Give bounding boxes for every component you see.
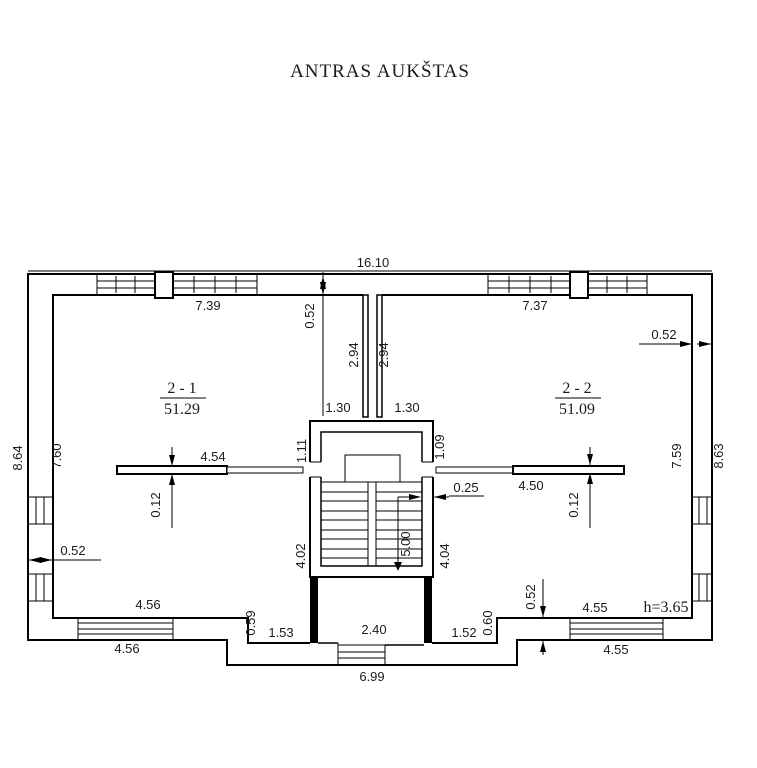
dim-porch-step-left: 0.59 — [243, 610, 258, 635]
dim-left-outer: 8.64 — [10, 445, 25, 470]
stair-stringer-gap — [368, 483, 376, 565]
dim-wall-bottom: 0.52 — [523, 584, 538, 609]
dim-left-inner: 7.60 — [49, 443, 64, 468]
room1-number: 2 - 1 — [167, 380, 196, 397]
dim-wall-left: 0.52 — [60, 543, 85, 558]
stair-door-gap-right — [420, 462, 435, 477]
dim-bottom-left-b: 4.56 — [114, 641, 139, 656]
dim-stair-lower-left: 4.02 — [293, 543, 308, 568]
window-band-top-left-2 — [173, 274, 257, 295]
dim-stair-upper-right: 1.09 — [432, 434, 447, 459]
dim-room2-top: 7.37 — [522, 298, 547, 313]
left-wall-windows — [28, 497, 53, 601]
window-band-top-right-2 — [588, 274, 647, 295]
dim-right-outer: 8.63 — [711, 443, 726, 468]
vestibule-wall-left — [310, 577, 318, 643]
right-wall-windows — [692, 497, 712, 601]
vestibule — [310, 577, 432, 665]
dim-stair-lower-right: 4.04 — [437, 543, 452, 568]
dim-right-inner: 7.59 — [669, 443, 684, 468]
dim-porch-right: 1.52 — [451, 625, 476, 640]
window-pier-left — [155, 272, 173, 298]
dim-opening-right: 1.30 — [394, 400, 419, 415]
dim-opening-left: 1.30 — [325, 400, 350, 415]
dim-stair-run: 5.00 — [398, 531, 413, 556]
dim-bottom-right-b: 4.55 — [603, 642, 628, 657]
dim-rail-left: 4.54 — [200, 449, 225, 464]
window-band-top-right-1 — [488, 274, 570, 295]
dim-room1-top: 7.39 — [195, 298, 220, 313]
rail-right-thin — [436, 467, 513, 473]
dim-shaft-left: 2.94 — [346, 342, 361, 367]
dim-wall-top: 0.52 — [302, 303, 317, 328]
dim-porch-width: 2.40 — [361, 622, 386, 637]
dim-rail-right: 4.50 — [518, 478, 543, 493]
floor-plan-canvas: ANTRAS AUKŠTAS 16.10 7.39 7.37 0.52 0.52… — [0, 0, 757, 768]
dim-stair-upper-left: 1.11 — [294, 439, 309, 463]
bottom-right-window — [570, 618, 663, 640]
window-pier-right — [570, 272, 588, 298]
dim-wall-right: 0.52 — [651, 327, 676, 342]
entrance-steps — [338, 643, 385, 665]
floor-plan-page: ANTRAS AUKŠTAS 16.10 7.39 7.37 0.52 0.52… — [0, 0, 757, 768]
dim-porch-step-right: 0.60 — [480, 610, 495, 635]
stair-door-gap-left — [308, 462, 323, 477]
dim-rail-right-thk: 0.12 — [566, 492, 581, 517]
dim-bottom-left-a: 4.56 — [135, 597, 160, 612]
room1-area: 51.29 — [164, 401, 200, 418]
bottom-left-window — [78, 618, 173, 640]
window-band-top-left-1 — [97, 274, 155, 295]
dim-shaft-right: 2.94 — [376, 342, 391, 367]
rail-left-thin — [227, 467, 303, 473]
dim-stair-wall: 0.25 — [453, 480, 478, 495]
height-note: h=3.65 — [643, 599, 688, 616]
dim-porch-total: 6.99 — [359, 669, 384, 684]
page-title: ANTRAS AUKŠTAS — [290, 60, 470, 82]
rail-right-thick — [513, 466, 624, 474]
dim-rail-left-thk: 0.12 — [148, 492, 163, 517]
dim-porch-left: 1.53 — [268, 625, 293, 640]
room2-number: 2 - 2 — [562, 380, 591, 397]
room2-area: 51.09 — [559, 401, 595, 418]
party-wall-left — [363, 295, 368, 417]
vestibule-wall-right — [424, 577, 432, 643]
dim-bottom-right-a: 4.55 — [582, 600, 607, 615]
stairwell — [308, 421, 435, 577]
dim-total-width: 16.10 — [357, 255, 390, 270]
rail-left-thick — [117, 466, 227, 474]
